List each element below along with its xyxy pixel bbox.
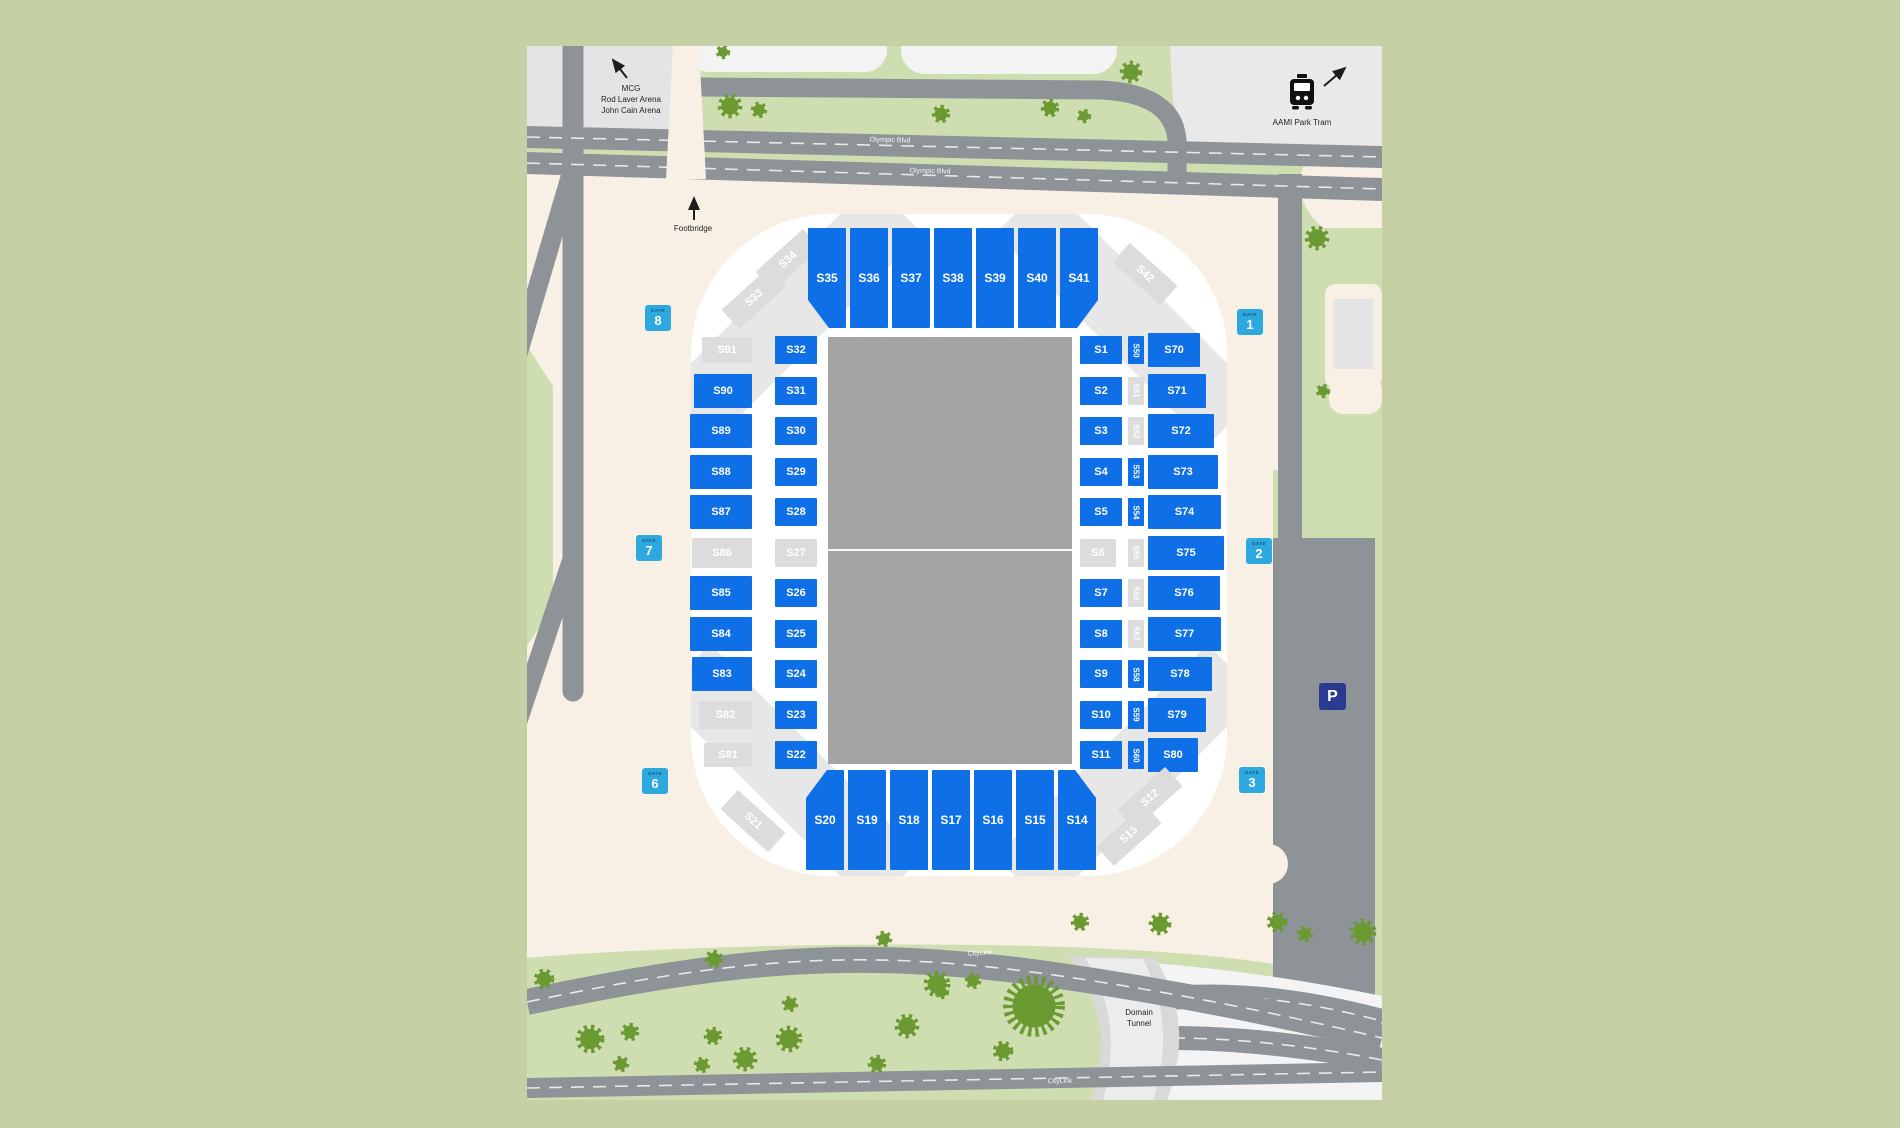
section-S75[interactable]: S75 [1148,536,1224,570]
domain-tunnel-line2: Tunnel [1099,1019,1179,1030]
section-label: S54 [1131,505,1140,519]
section-S57: S57 [1128,620,1144,648]
section-label: S79 [1167,709,1187,721]
section-S16[interactable]: S16 [974,770,1012,870]
section-S18[interactable]: S18 [890,770,928,870]
section-label: S40 [1026,271,1047,285]
section-S35[interactable]: S35 [808,228,846,328]
stadium-map: S34S33S35S36S37S38S39S40S41S42S91S90S89S… [527,46,1382,1100]
section-S71[interactable]: S71 [1148,374,1206,408]
mcg-line2: Rod Laver Arena [561,95,701,106]
section-S38[interactable]: S38 [934,228,972,328]
section-label: S17 [940,813,961,827]
domain-tunnel-line1: Domain [1099,1008,1179,1019]
section-S51: S51 [1128,377,1144,405]
section-S70[interactable]: S70 [1148,333,1200,367]
section-S58[interactable]: S58 [1128,660,1144,688]
section-S7[interactable]: S7 [1080,579,1122,607]
section-S19[interactable]: S19 [848,770,886,870]
section-label: S30 [786,425,806,437]
section-label: S60 [1131,748,1140,762]
section-S3[interactable]: S3 [1080,417,1122,445]
gate-number: 1 [1246,318,1253,331]
section-S21: S21 [721,790,786,852]
section-label: S10 [1091,709,1111,721]
section-S31[interactable]: S31 [775,377,817,405]
section-label: S87 [711,506,731,518]
section-S25[interactable]: S25 [775,620,817,648]
section-label: S1 [1094,344,1107,356]
section-label: S56 [1131,586,1140,600]
section-label: S29 [786,466,806,478]
section-S88[interactable]: S88 [690,455,752,489]
section-S53[interactable]: S53 [1128,458,1144,486]
section-S2[interactable]: S2 [1080,377,1122,405]
section-S26[interactable]: S26 [775,579,817,607]
section-S4[interactable]: S4 [1080,458,1122,486]
section-S81: S81 [704,743,752,767]
section-label: S22 [786,749,806,761]
section-S39[interactable]: S39 [976,228,1014,328]
section-S42: S42 [1113,243,1178,305]
parking-icon: P [1319,683,1346,710]
section-label: S7 [1094,587,1107,599]
section-label: S11 [1092,749,1111,761]
section-S30[interactable]: S30 [775,417,817,445]
section-label: S42 [1134,263,1157,285]
section-S8[interactable]: S8 [1080,620,1122,648]
section-S90[interactable]: S90 [694,374,752,408]
section-label: S31 [786,385,806,397]
section-label: S52 [1131,424,1140,438]
footbridge-label: Footbridge [643,224,743,235]
section-label: S28 [786,506,806,518]
section-label: S26 [786,587,806,599]
section-S14[interactable]: S14 [1058,770,1096,870]
section-label: S8 [1094,628,1107,640]
citylink-label-2: CityLink [1025,1076,1095,1087]
section-S37[interactable]: S37 [892,228,930,328]
section-S60[interactable]: S60 [1128,741,1144,769]
section-label: S84 [711,628,731,640]
section-label: S74 [1175,506,1195,518]
section-S1[interactable]: S1 [1080,336,1122,364]
section-S77[interactable]: S77 [1148,617,1221,651]
section-S27: S27 [775,539,817,567]
section-S83[interactable]: S83 [692,657,752,691]
section-label: S33 [743,287,766,309]
section-label: S3 [1094,425,1107,437]
section-label: S72 [1171,425,1191,437]
gate-7-badge: GATE 7 [636,535,662,561]
section-S82: S82 [699,701,752,729]
gate-8-badge: GATE 8 [645,305,671,331]
section-label: S5 [1094,506,1107,518]
section-label: S50 [1131,343,1140,357]
section-label: S25 [786,628,806,640]
section-label: S19 [856,813,877,827]
gate-number: 8 [654,314,661,327]
section-label: S39 [984,271,1005,285]
section-S59[interactable]: S59 [1128,701,1144,729]
section-S15[interactable]: S15 [1016,770,1054,870]
section-S86: S86 [692,538,752,568]
gate-number: 6 [651,777,658,790]
section-S20[interactable]: S20 [806,770,844,870]
section-S74[interactable]: S74 [1148,495,1221,529]
domain-tunnel-label: Domain Tunnel [1099,1008,1179,1030]
section-label: S34 [777,249,800,271]
section-label: S75 [1176,547,1196,559]
section-S28[interactable]: S28 [775,498,817,526]
section-S17[interactable]: S17 [932,770,970,870]
section-label: S70 [1164,344,1184,356]
section-label: S82 [716,709,736,721]
section-S29[interactable]: S29 [775,458,817,486]
section-label: S12 [1139,787,1162,809]
olympic-blvd-label-1: Olympic Blvd [850,135,930,146]
section-label: S9 [1094,668,1107,680]
gate-3-badge: GATE 3 [1239,767,1265,793]
section-label: S21 [742,810,765,832]
section-label: S16 [982,813,1003,827]
section-label: S80 [1163,749,1183,761]
section-S33: S33 [722,267,787,329]
gate-1-badge: GATE 1 [1237,309,1263,335]
tram-label: AAMI Park Tram [1232,118,1372,129]
section-S10[interactable]: S10 [1080,701,1122,729]
section-S80[interactable]: S80 [1148,738,1198,772]
gate-2-badge: GATE 2 [1246,538,1272,564]
olympic-blvd-label-2: Olympic Blvd [890,166,970,177]
section-S79[interactable]: S79 [1148,698,1206,732]
mcg-line1: MCG [561,84,701,95]
section-S41[interactable]: S41 [1060,228,1098,328]
section-S55: S55 [1128,539,1144,567]
section-label: S51 [1131,383,1140,397]
section-S72[interactable]: S72 [1148,414,1214,448]
section-label: S24 [786,668,806,680]
section-S87[interactable]: S87 [690,495,752,529]
section-S89[interactable]: S89 [690,414,752,448]
section-S24[interactable]: S24 [775,660,817,688]
mcg-label: MCG Rod Laver Arena John Cain Arena [561,84,701,116]
section-label: S91 [717,344,737,356]
section-label: S2 [1094,385,1107,397]
section-label: S77 [1175,628,1195,640]
mcg-line3: John Cain Arena [561,106,701,117]
section-label: S27 [786,547,806,559]
section-label: S55 [1131,545,1140,559]
page: { "colors": { "page_green": "#c5d1a5", "… [0,0,1900,1128]
section-label: S83 [712,668,732,680]
gate-6-badge: GATE 6 [642,768,668,794]
section-S6: S6 [1080,539,1116,567]
section-S23[interactable]: S23 [775,701,817,729]
section-S78[interactable]: S78 [1148,657,1212,691]
section-label: S32 [786,344,806,356]
gate-number: 3 [1248,776,1255,789]
section-S84[interactable]: S84 [690,617,752,651]
section-S32[interactable]: S32 [775,336,817,364]
section-label: S41 [1068,271,1089,285]
section-label: S6 [1091,547,1104,559]
section-label: S85 [711,587,731,599]
section-label: S35 [816,271,837,285]
tram-icon [1288,74,1316,115]
section-S36[interactable]: S36 [850,228,888,328]
section-label: S53 [1131,464,1140,478]
section-label: S86 [712,547,732,559]
section-label: S37 [900,271,921,285]
section-S73[interactable]: S73 [1148,455,1218,489]
seating-sections: S34S33S35S36S37S38S39S40S41S42S91S90S89S… [527,46,1382,1100]
gate-number: 2 [1255,547,1262,560]
section-label: S88 [711,466,731,478]
section-label: S4 [1094,466,1107,478]
section-S11[interactable]: S11 [1080,741,1122,769]
section-S9[interactable]: S9 [1080,660,1122,688]
section-label: S90 [713,385,733,397]
section-S54[interactable]: S54 [1128,498,1144,526]
section-S22[interactable]: S22 [775,741,817,769]
section-S76[interactable]: S76 [1148,576,1220,610]
section-label: S23 [786,709,806,721]
section-S40[interactable]: S40 [1018,228,1056,328]
section-S56: S56 [1128,579,1144,607]
section-label: S78 [1170,668,1190,680]
section-label: S36 [858,271,879,285]
section-S85[interactable]: S85 [690,576,752,610]
section-label: S57 [1131,626,1140,640]
section-label: S81 [718,749,738,761]
section-label: S59 [1131,707,1140,721]
section-label: S18 [898,813,919,827]
section-label: S20 [814,813,835,827]
section-label: S76 [1174,587,1194,599]
section-label: S89 [711,425,731,437]
section-S5[interactable]: S5 [1080,498,1122,526]
section-label: S38 [942,271,963,285]
section-label: S58 [1131,667,1140,681]
section-S50[interactable]: S50 [1128,336,1144,364]
section-label: S14 [1066,813,1087,827]
gate-number: 7 [645,544,652,557]
section-label: S15 [1024,813,1045,827]
section-S91: S91 [702,337,752,363]
section-label: S71 [1167,385,1187,397]
section-S52: S52 [1128,417,1144,445]
section-label: S73 [1173,466,1193,478]
